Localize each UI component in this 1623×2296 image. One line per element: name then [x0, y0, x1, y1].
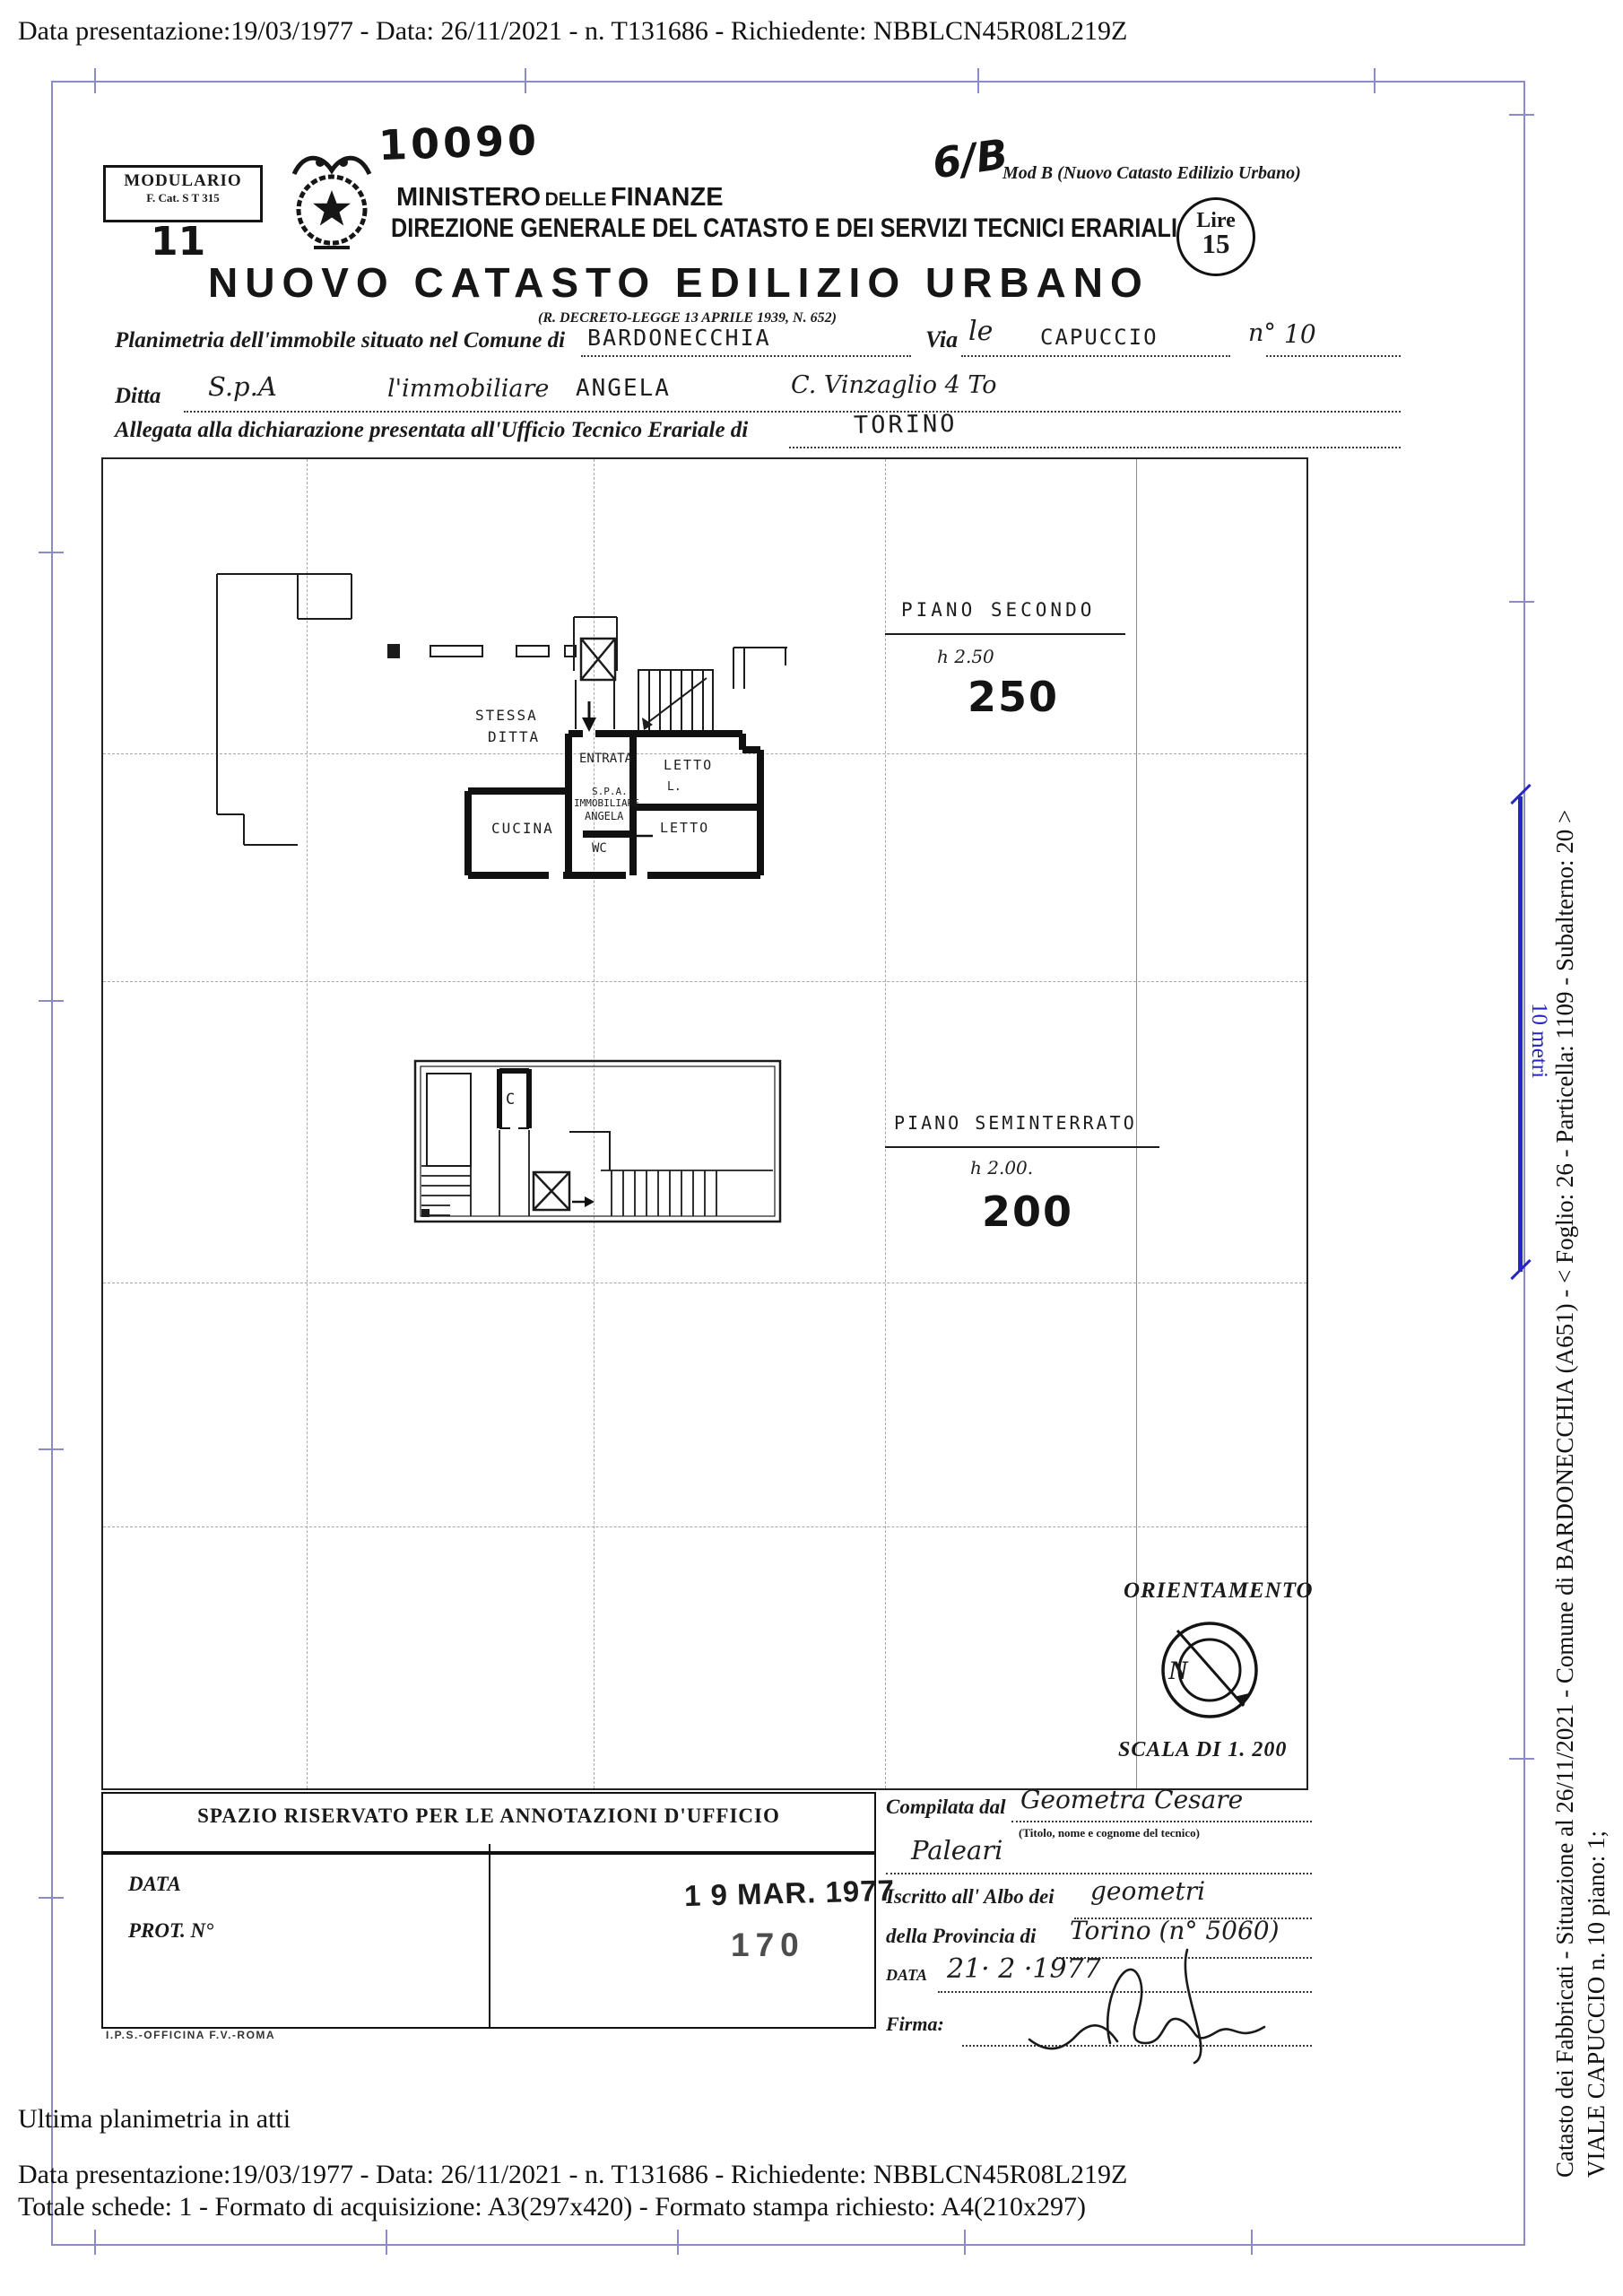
margin-line2: VIALE CAPUCCIO n. 10 piano: 1; — [1581, 61, 1612, 2178]
ruler-tick — [677, 2230, 679, 2255]
via-value: CAPUCCIO — [1040, 325, 1159, 350]
ditta-value-4: C. Vinzaglio 4 To — [791, 371, 997, 399]
handwritten-6b: 6/B — [930, 129, 1011, 187]
annotations-divider — [489, 1844, 490, 2027]
floor2-title: PIANO SEMINTERRATO — [894, 1112, 1137, 1134]
ruler-tick — [1374, 68, 1376, 93]
via-label: Via — [925, 326, 958, 353]
ministry-word-3: FINANZE — [611, 183, 724, 212]
grid-line — [103, 1283, 1306, 1283]
main-title: NUOVO CATASTO EDILIZIO URBANO — [208, 258, 1150, 307]
scale-text: SCALA DI 1. 200 — [1118, 1738, 1287, 1762]
floor1-title: PIANO SECONDO — [901, 599, 1095, 621]
lire-value: 15 — [1179, 230, 1253, 257]
room-label-entrata: ENTRATA — [579, 752, 632, 766]
room-label-ditta: DITTA — [488, 728, 540, 745]
ministry-line: MINISTERO DELLE FINANZE — [396, 183, 724, 213]
scale-bar — [1518, 796, 1523, 1272]
modulario-title: MODULARIO — [106, 171, 260, 191]
compiler-block: Compilata dal Geometra Cesare (Titolo, n… — [886, 1790, 1315, 2041]
data-label: DATA — [128, 1873, 181, 1896]
prot-label: PROT. N° — [128, 1919, 213, 1943]
state-eagle-emblem-icon — [287, 143, 377, 258]
ditta-value-3: ANGELA — [576, 375, 671, 402]
room-label-letto1: LETTO — [664, 757, 713, 773]
margin-line1: Catasto dei Fabbricati - Situazione al 2… — [1549, 61, 1581, 2178]
document-top-header: Data presentazione:19/03/1977 - Data: 26… — [18, 16, 1127, 47]
ruler-tick — [386, 2230, 387, 2255]
ditta-value-2: l'immobiliare — [387, 375, 549, 403]
orientation-title: ORIENTAMENTO — [1124, 1578, 1314, 1604]
firma-label: Firma: — [886, 2013, 944, 2036]
albo-label: Iscritto all' Albo dei — [886, 1885, 1055, 1909]
floor2-caption-block: PIANO SEMINTERRATO h 2.00. 200 — [885, 1103, 1181, 1256]
footer-line2: Totale schede: 1 - Formato di acquisizio… — [18, 2192, 1086, 2222]
modulario-subtitle: F. Cat. S T 315 — [106, 191, 260, 205]
ruler-tick — [39, 1000, 64, 1002]
compilata-hint: (Titolo, nome e cognome del tecnico) — [1019, 1826, 1200, 1840]
ruler-tick — [94, 68, 96, 93]
ruler-tick — [1251, 2230, 1253, 2255]
lire-15-stamp: Lire 15 — [1176, 197, 1255, 276]
form-line3-label: Allegata alla dichiarazione presentata a… — [115, 418, 748, 443]
footer-note: Ultima planimetria in atti — [18, 2104, 291, 2135]
dotted-rule — [1266, 355, 1401, 357]
floor-plan-basement-drawing — [386, 1031, 820, 1251]
orientation-block: ORIENTAMENTO N SCALA DI 1. 200 — [1118, 1578, 1333, 1776]
compilata-value: Geometra Cesare — [1020, 1785, 1243, 1814]
ruler-tick — [39, 1897, 64, 1899]
ruler-tick — [964, 2230, 966, 2255]
dotted-rule — [789, 447, 1401, 448]
ruler-tick — [525, 68, 526, 93]
room-label-letto2: LETTO — [660, 820, 709, 836]
ruler-tick — [94, 2230, 96, 2255]
floor-plan-second: STESSA DITTA ENTRATA LETTO L. S.P.A. IMM… — [206, 565, 798, 906]
scale-bar-label: 10 metri — [1526, 1003, 1551, 1078]
signature-scrawl — [1002, 1934, 1298, 2068]
room-label-c: C — [506, 1091, 515, 1109]
dotted-rule — [961, 355, 1230, 357]
comune-value: BARDONECCHIA — [587, 325, 771, 351]
caption-underline — [885, 1146, 1159, 1148]
dotted-rule — [184, 411, 1401, 413]
footer-line1: Data presentazione:19/03/1977 - Data: 26… — [18, 2160, 1127, 2190]
form-line1-label: Planimetria dell'immobile situato nel Co… — [115, 328, 565, 353]
compilata-label: Compilata dal — [886, 1796, 1006, 1819]
handwritten-10090: 10090 — [378, 116, 541, 170]
room-label-cucina: CUCINA — [491, 820, 554, 837]
compass-north-label: N — [1168, 1656, 1188, 1686]
dotted-rule — [581, 355, 911, 357]
office-annotations-box: SPAZIO RISERVATO PER LE ANNOTAZIONI D'UF… — [101, 1792, 876, 2029]
floor2-hand-value: 200 — [982, 1187, 1073, 1236]
floor1-height: h 2.50 — [937, 646, 994, 667]
num-label: n° — [1248, 319, 1276, 347]
protocol-number-stamp: 170 — [731, 1926, 805, 1964]
direction-line: DIREZIONE GENERALE DEL CATASTO E DEI SER… — [391, 213, 1177, 244]
floor1-hand-value: 250 — [968, 673, 1059, 721]
ruler-tick — [1509, 601, 1534, 603]
room-label-wc: WC — [592, 841, 607, 856]
modulario-stamp-box: MODULARIO F. Cat. S T 315 — [103, 165, 263, 222]
dotted-rule — [886, 1873, 1312, 1874]
floor-plan-sheet: STESSA DITTA ENTRATA LETTO L. S.P.A. IMM… — [101, 457, 1308, 1790]
handwritten-11: 11 — [151, 219, 205, 265]
floor2-height: h 2.00. — [970, 1157, 1033, 1178]
ministry-word-1: MINISTERO — [396, 183, 541, 212]
grid-line — [103, 981, 1306, 982]
print-credit: I.P.S.-OFFICINA F.V.-ROMA — [106, 2029, 275, 2041]
cadastral-document-page: Data presentazione:19/03/1977 - Data: 26… — [0, 0, 1623, 2296]
caption-underline — [885, 633, 1125, 635]
room-label-stessa: STESSA — [475, 707, 538, 724]
ministry-word-2: DELLE — [545, 189, 607, 210]
floor1-caption-block: PIANO SECONDO h 2.50 250 — [885, 594, 1163, 737]
ruler-tick — [1509, 1758, 1534, 1760]
room-label-letto1-sub: L. — [667, 780, 681, 794]
ruler-tick — [977, 68, 979, 93]
compiler-data-label: DATA — [886, 1966, 927, 1985]
room-label-spa2: IMMOBILIARE — [574, 797, 639, 809]
ditta-label: Ditta — [115, 384, 161, 409]
grid-line — [103, 1526, 1306, 1527]
compilata-value2: Paleari — [911, 1835, 1002, 1865]
mod-b-label: Mod B (Nuovo Catasto Edilizio Urbano) — [1002, 163, 1301, 184]
ruler-tick — [1509, 114, 1534, 116]
date-stamp: 1 9 MAR. 1977 — [684, 1874, 896, 1913]
ruler-tick — [39, 1448, 64, 1450]
margin-metadata: Catasto dei Fabbricati - Situazione al 2… — [1549, 61, 1612, 2178]
num-value: 10 — [1284, 319, 1316, 349]
ufficio-value: TORINO — [854, 410, 958, 439]
room-label-spa3: ANGELA — [585, 810, 623, 822]
ditta-value-1: S.p.A — [208, 371, 277, 402]
albo-value: geometri — [1090, 1876, 1205, 1906]
room-label-spa1: S.P.A. — [592, 786, 628, 797]
dotted-rule — [1011, 1821, 1312, 1822]
via-hand: le — [968, 316, 993, 347]
ruler-tick — [39, 552, 64, 553]
floor-plan-basement: C — [386, 1031, 820, 1251]
